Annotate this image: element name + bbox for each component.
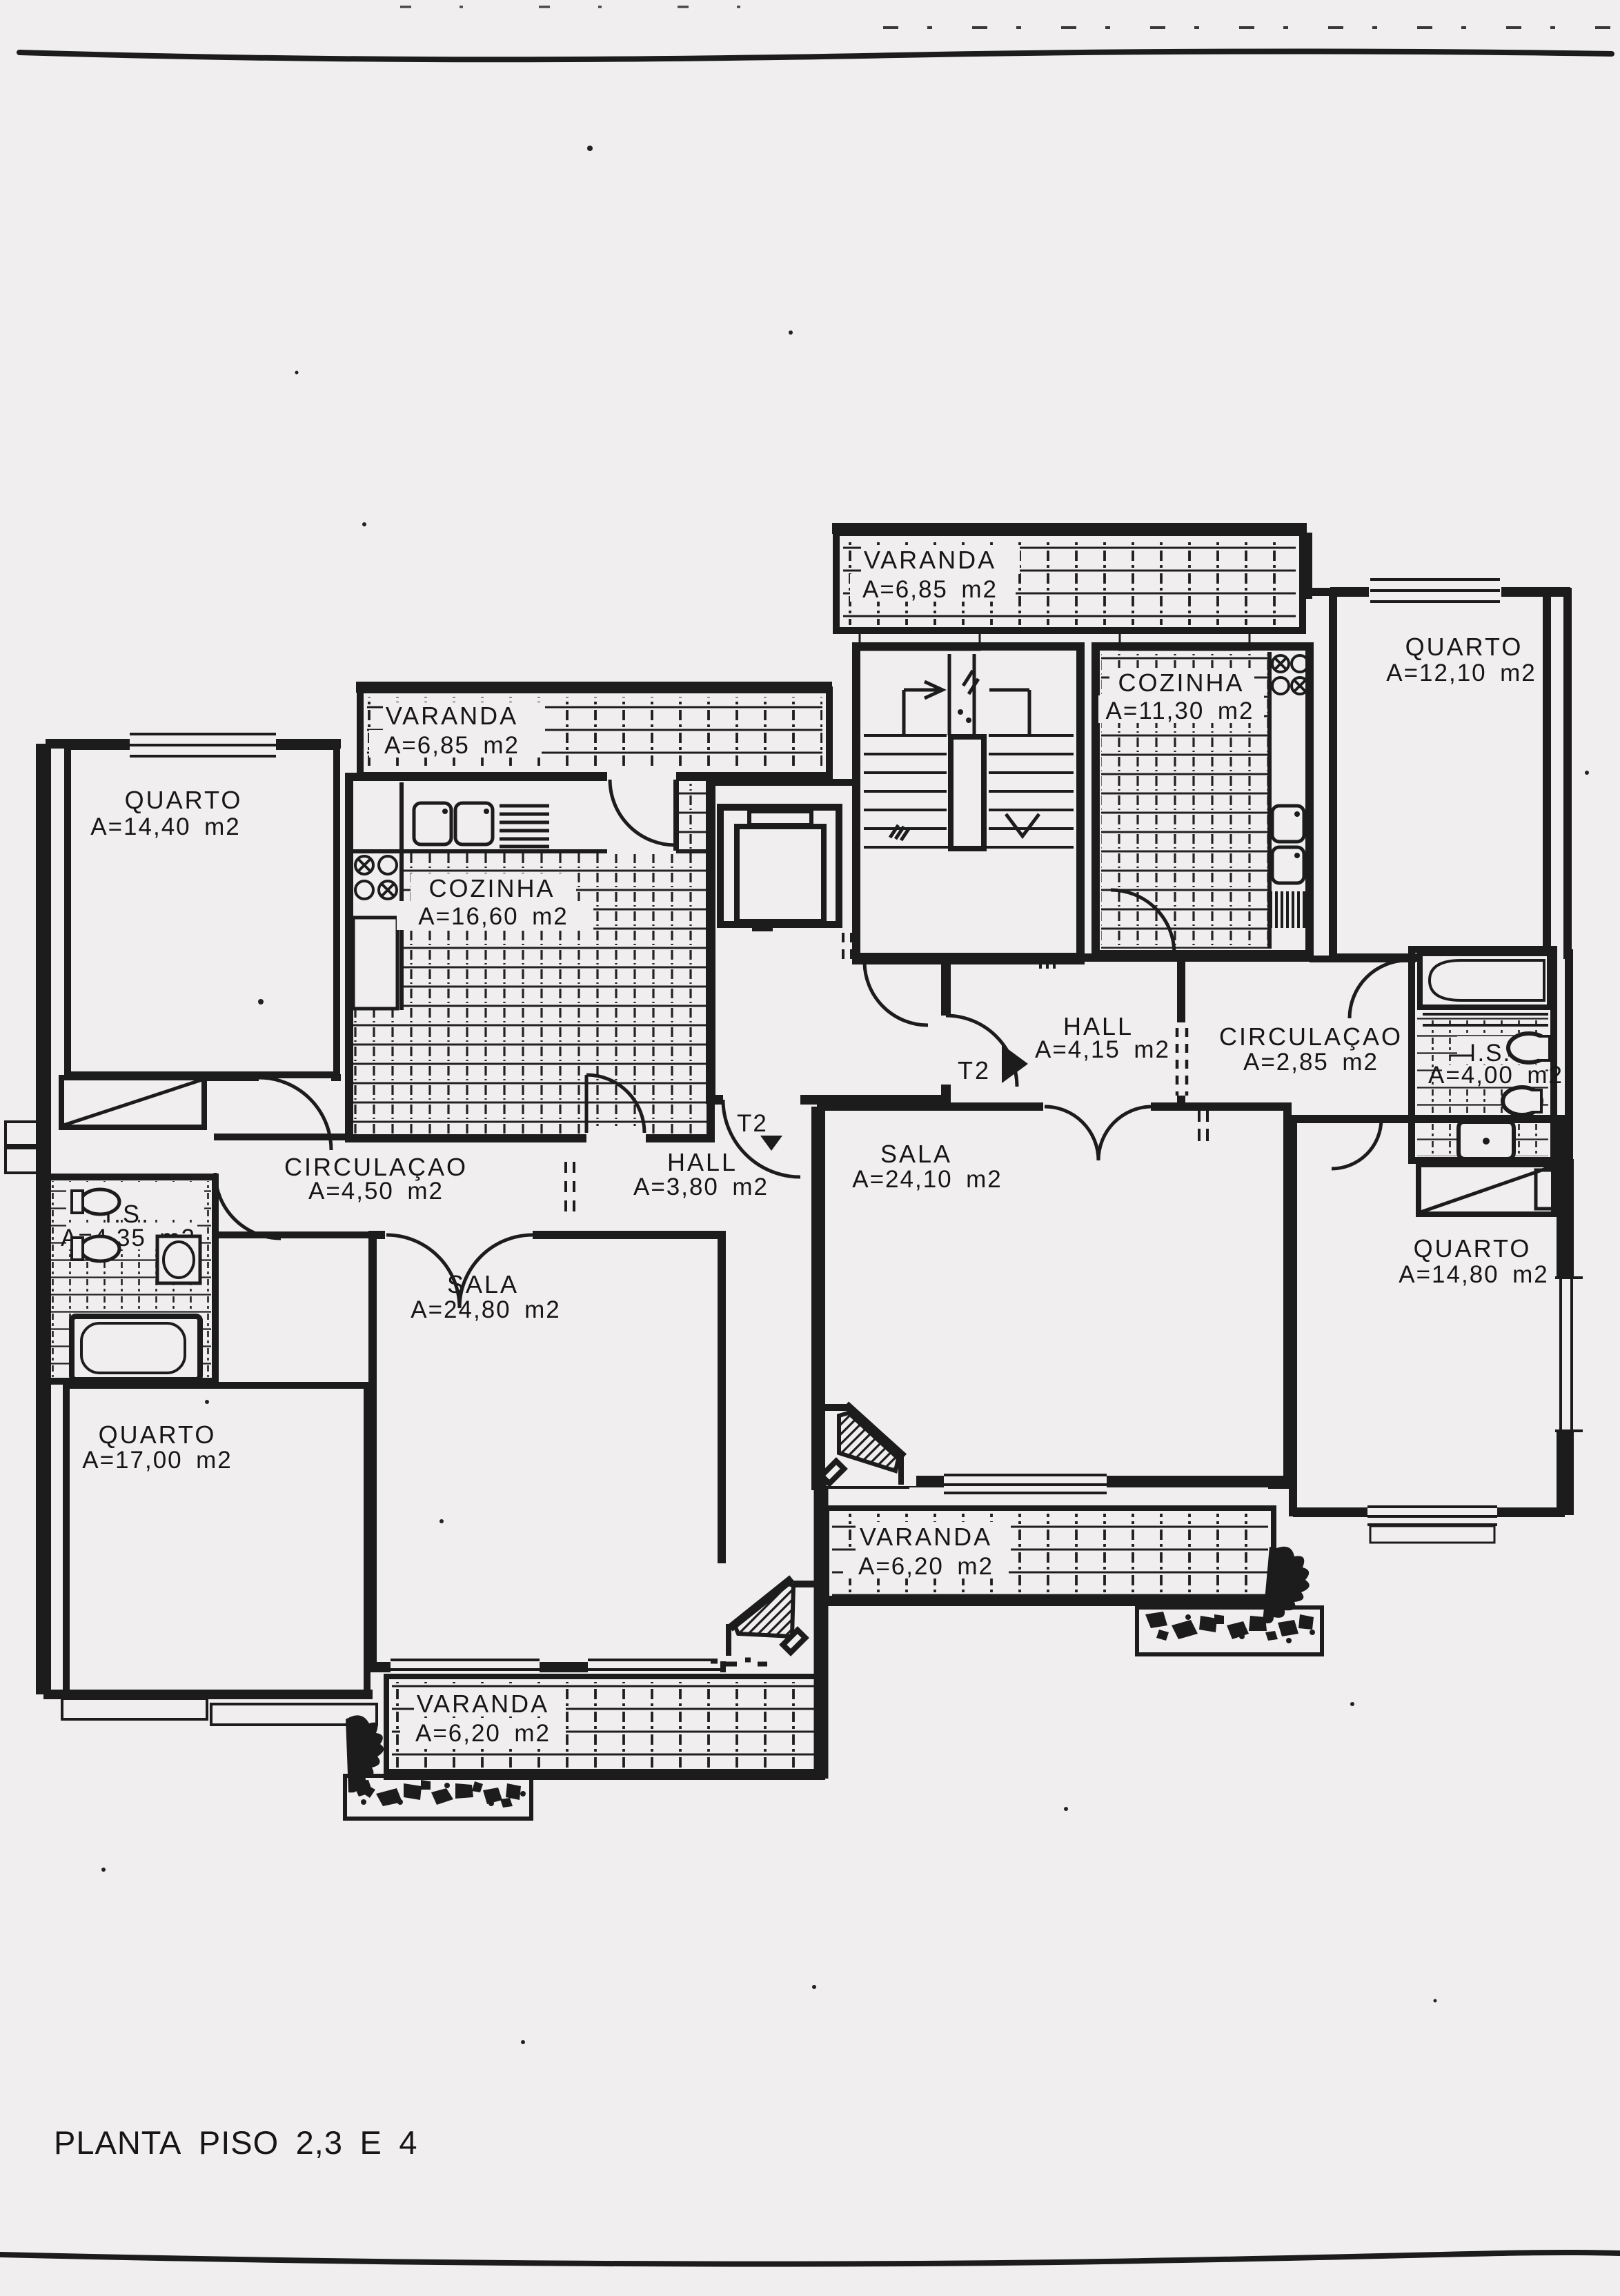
svg-text:A=24,80 m2: A=24,80 m2 [411, 1296, 561, 1323]
svg-text:QUARTO: QUARTO [125, 786, 243, 814]
svg-text:A=11,30 m2: A=11,30 m2 [1106, 697, 1254, 724]
svg-text:SALA: SALA [880, 1140, 952, 1168]
svg-text:VARANDA: VARANDA [386, 702, 518, 730]
svg-text:COZINHA: COZINHA [429, 874, 555, 902]
svg-text:A=14,40 m2: A=14,40 m2 [90, 813, 241, 840]
svg-text:T2: T2 [958, 1056, 991, 1085]
svg-text:A=14,80 m2: A=14,80 m2 [1399, 1261, 1549, 1288]
svg-text:A=17,00 m2: A=17,00 m2 [82, 1447, 233, 1474]
svg-text:A=4,15 m2: A=4,15 m2 [1035, 1036, 1170, 1063]
svg-text:VARANDA: VARANDA [860, 1523, 992, 1551]
svg-text:A=12,10 m2: A=12,10 m2 [1386, 660, 1537, 686]
svg-text:VARANDA: VARANDA [864, 546, 996, 574]
svg-text:CIRCULAÇAO: CIRCULAÇAO [1219, 1022, 1403, 1051]
svg-text:A=6,85 m2: A=6,85 m2 [384, 732, 520, 759]
svg-text:HALL: HALL [667, 1148, 738, 1176]
svg-text:A=6,85 m2: A=6,85 m2 [862, 576, 998, 603]
svg-text:A=6,20 m2: A=6,20 m2 [415, 1720, 551, 1747]
svg-text:VARANDA: VARANDA [417, 1690, 549, 1718]
svg-text:QUARTO: QUARTO [1414, 1234, 1532, 1263]
svg-text:QUARTO: QUARTO [1405, 633, 1523, 661]
svg-text:A=24,10 m2: A=24,10 m2 [852, 1166, 1002, 1193]
svg-text:CIRCULAÇAO: CIRCULAÇAO [284, 1153, 468, 1181]
svg-text:COZINHA: COZINHA [1118, 669, 1245, 697]
svg-text:A=3,80 m2: A=3,80 m2 [633, 1174, 769, 1200]
svg-text:PLANTA PISO 2,3 E 4: PLANTA PISO 2,3 E 4 [54, 2124, 418, 2161]
svg-text:QUARTO: QUARTO [99, 1421, 217, 1449]
svg-text:A=4,50 m2: A=4,50 m2 [308, 1178, 444, 1205]
svg-text:T2: T2 [737, 1110, 768, 1137]
svg-text:A=4,00 m2: A=4,00 m2 [1428, 1062, 1563, 1089]
svg-text:A=6,20 m2: A=6,20 m2 [858, 1553, 994, 1580]
svg-text:A=16,60 m2: A=16,60 m2 [418, 903, 569, 930]
svg-text:A=2,85 m2: A=2,85 m2 [1243, 1049, 1379, 1076]
